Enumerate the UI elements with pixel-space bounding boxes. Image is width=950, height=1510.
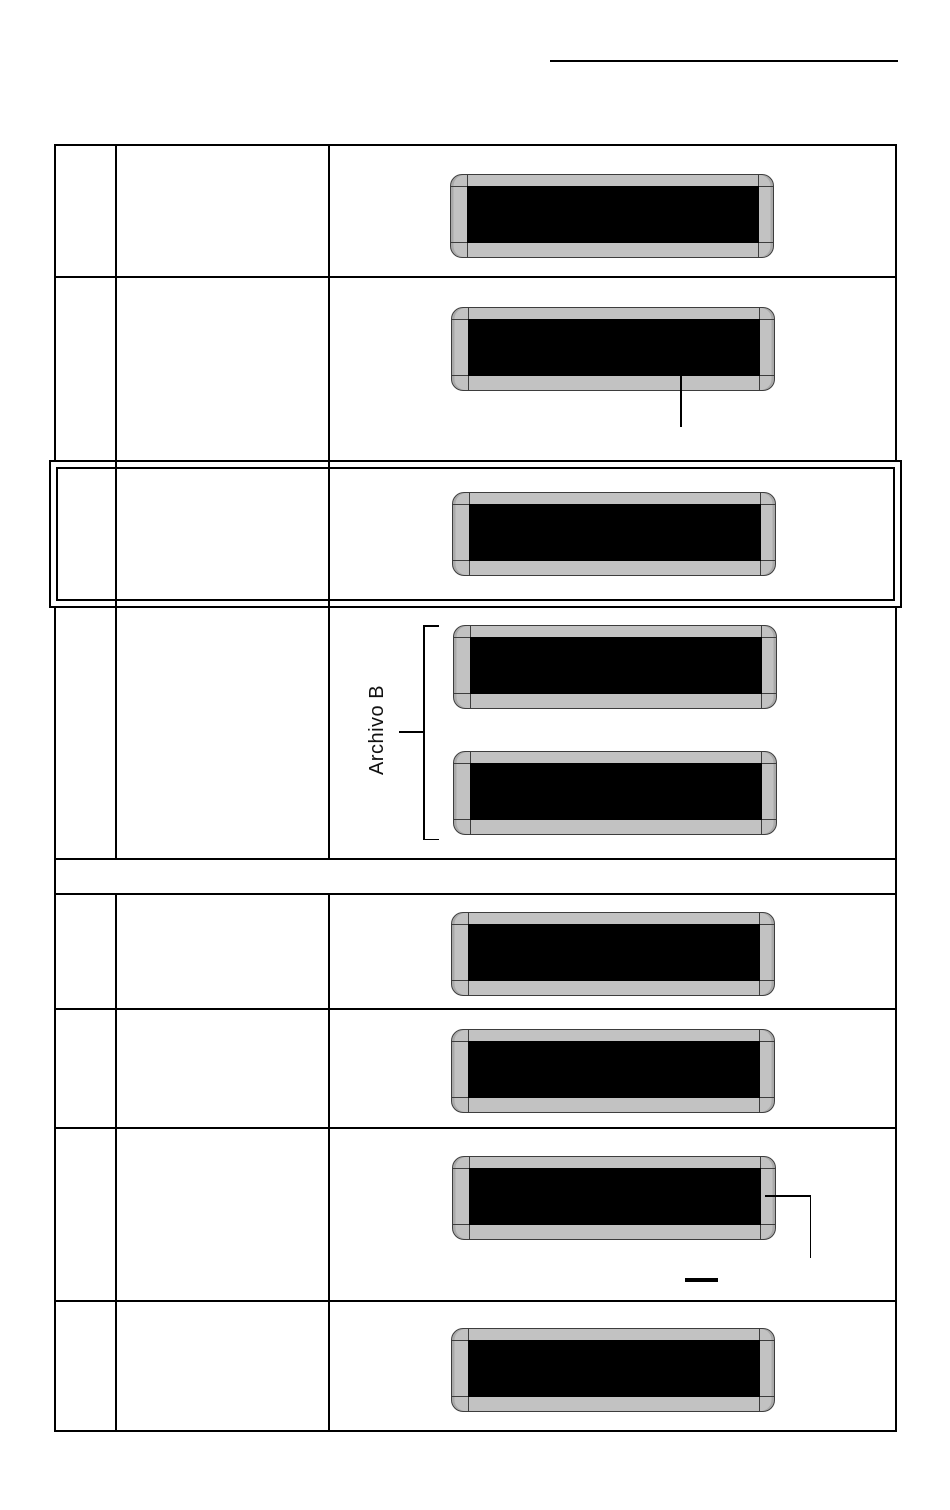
row-line-6 <box>54 1127 897 1129</box>
lcd-display <box>452 1156 776 1240</box>
bracket-tick-middle <box>399 731 424 733</box>
table-bottom-border <box>54 1430 897 1432</box>
lcd-display <box>453 625 777 709</box>
lcd-display <box>451 912 775 996</box>
table-right-border-upper <box>895 144 897 462</box>
row-line-7 <box>54 1300 897 1302</box>
underline-dash-mark <box>685 1278 718 1282</box>
lcd-screen <box>468 1041 760 1098</box>
bracket-tick-bottom <box>423 839 439 841</box>
header-rule <box>550 60 898 62</box>
lcd-screen <box>468 924 760 981</box>
column-divider-1-lower <box>115 893 117 1432</box>
lcd-display <box>450 174 774 258</box>
lcd-screen <box>467 186 759 243</box>
lcd-screen <box>469 1168 761 1225</box>
lcd-screen <box>470 637 762 694</box>
lcd-display <box>452 492 776 576</box>
separator-row-line <box>54 893 897 895</box>
callout-line-row7-vertical <box>810 1195 812 1258</box>
lcd-screen <box>469 504 761 561</box>
column-divider-2-lower <box>328 893 330 1432</box>
table-left-border-upper <box>54 144 56 462</box>
table-left-border-lower <box>54 607 56 1432</box>
callout-line-row7-horizontal <box>765 1195 811 1197</box>
lcd-display <box>451 307 775 391</box>
lcd-screen <box>470 763 762 820</box>
lcd-screen <box>468 319 760 376</box>
table-top-border <box>54 144 897 146</box>
archivo-b-label: Archivo B <box>366 669 388 791</box>
lcd-display <box>453 751 777 835</box>
row-line-1 <box>54 276 897 278</box>
table-right-border-lower <box>895 607 897 1432</box>
lcd-screen <box>468 1340 760 1397</box>
lcd-display <box>451 1029 775 1113</box>
bracket-tick-top <box>423 625 439 627</box>
callout-line-row2 <box>680 375 682 427</box>
bracket-line <box>423 625 425 840</box>
row-line-5 <box>54 1008 897 1010</box>
row-line-4 <box>54 858 897 860</box>
lcd-display <box>451 1328 775 1412</box>
document-page: Archivo B <box>0 0 950 1510</box>
